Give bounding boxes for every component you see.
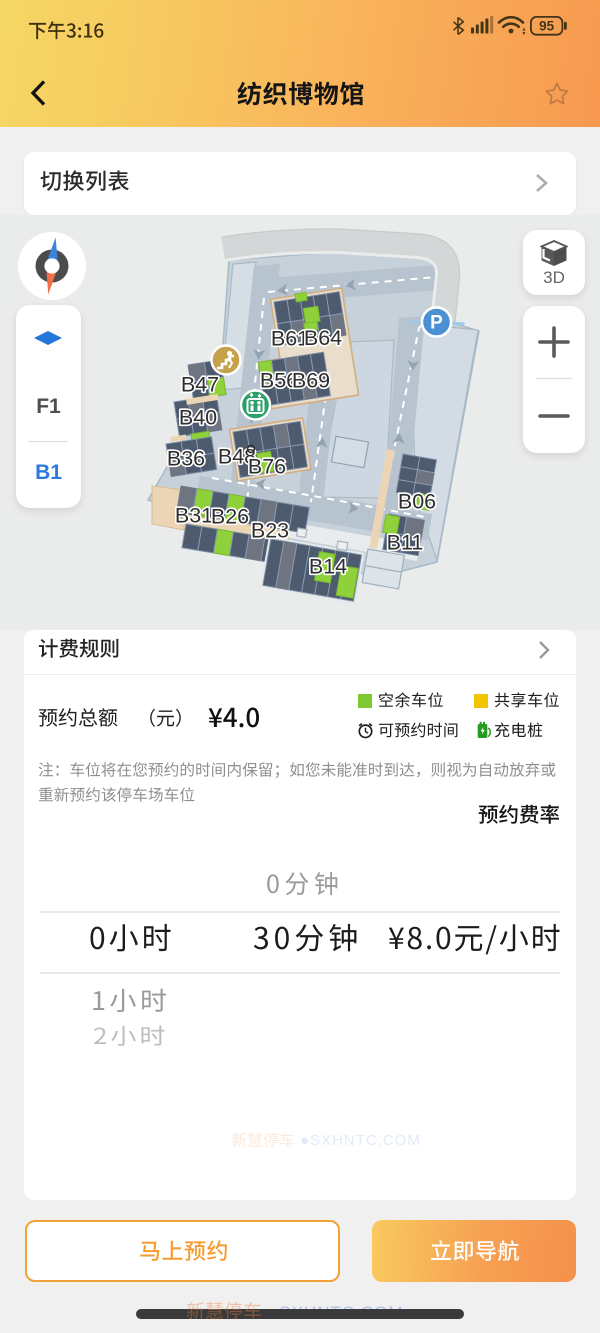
svg-text:B47: B47 — [181, 373, 219, 397]
svg-text:B69: B69 — [292, 369, 330, 393]
svg-text:B14: B14 — [309, 555, 347, 579]
svg-text:B26: B26 — [211, 505, 249, 529]
svg-text:B64: B64 — [304, 326, 342, 350]
svg-text:B36: B36 — [167, 447, 205, 471]
svg-text:B06: B06 — [398, 490, 436, 514]
svg-text:B40: B40 — [179, 406, 217, 430]
svg-text:B23: B23 — [251, 519, 289, 543]
svg-text:P: P — [430, 313, 443, 334]
svg-text:B76: B76 — [248, 455, 286, 479]
svg-text:B31: B31 — [175, 504, 213, 528]
svg-text:B11: B11 — [387, 531, 424, 555]
svg-text:95: 95 — [539, 19, 555, 34]
